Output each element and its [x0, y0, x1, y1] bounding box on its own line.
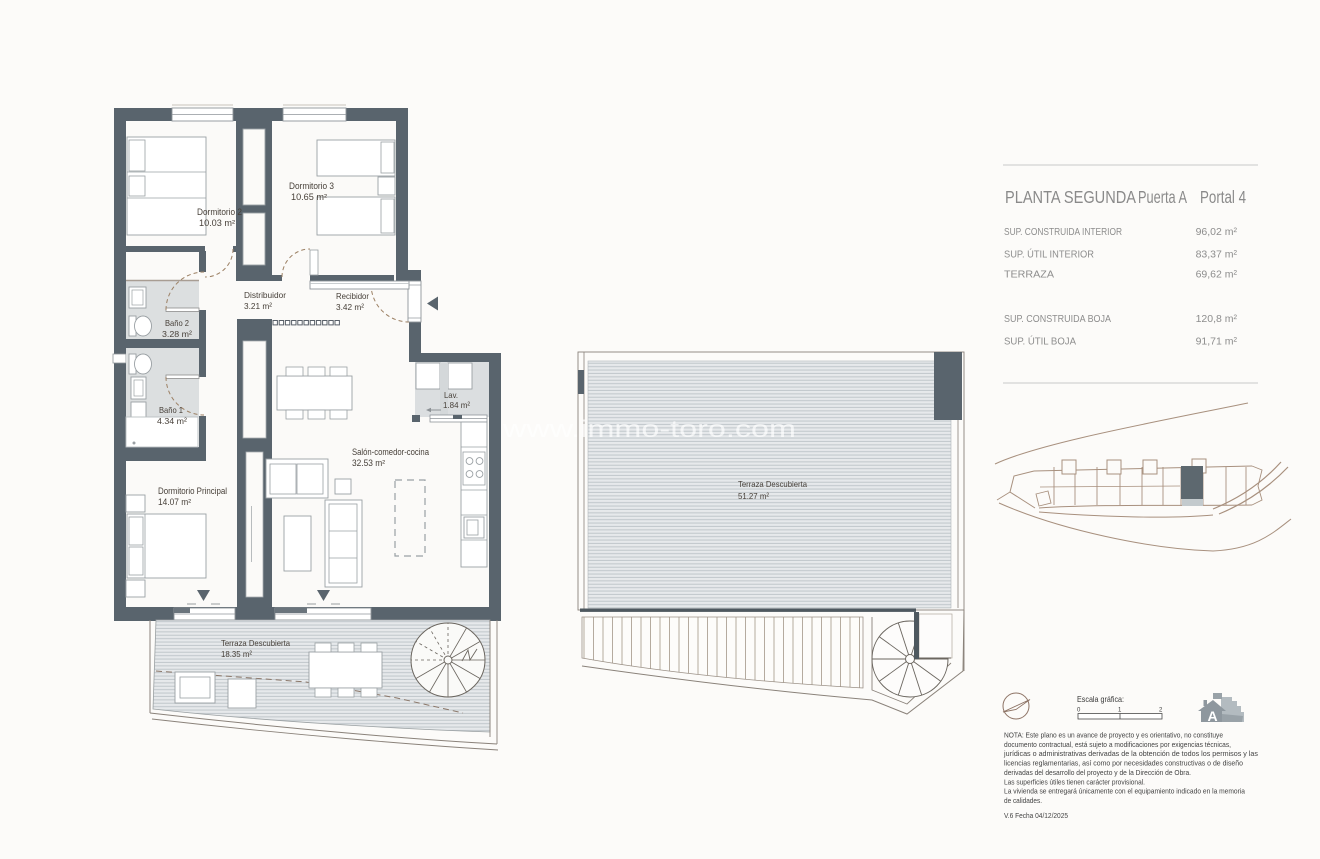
svg-text:10.65 m²: 10.65 m² — [291, 192, 327, 202]
svg-text:Terraza Descubierta: Terraza Descubierta — [738, 479, 807, 489]
svg-text:Lav.: Lav. — [444, 390, 458, 400]
svg-text:4.34 m²: 4.34 m² — [157, 416, 187, 426]
svg-text:derivadas del desarrollo del p: derivadas del desarrollo del proyecto y … — [1004, 768, 1191, 777]
svg-text:120,8 m²: 120,8 m² — [1196, 313, 1238, 325]
svg-text:Baño 2: Baño 2 — [165, 318, 189, 328]
svg-text:Portal 4: Portal 4 — [1200, 187, 1246, 207]
svg-text:14.07 m²: 14.07 m² — [158, 497, 191, 507]
svg-text:Dormitorio 2: Dormitorio 2 — [197, 207, 242, 217]
svg-text:Salón-comedor-cocina: Salón-comedor-cocina — [352, 447, 429, 457]
svg-text:83,37 m²: 83,37 m² — [1196, 249, 1238, 261]
svg-text:91,71 m²: 91,71 m² — [1196, 336, 1238, 348]
svg-text:18.35 m²: 18.35 m² — [221, 649, 252, 659]
svg-text:51.27 m²: 51.27 m² — [738, 491, 769, 501]
svg-text:PLANTA SEGUNDA: PLANTA SEGUNDA — [1005, 187, 1136, 207]
svg-text:1.84 m²: 1.84 m² — [443, 400, 470, 410]
svg-text:www.immo-toro.com: www.immo-toro.com — [502, 416, 796, 443]
svg-text:Puerta A: Puerta A — [1138, 187, 1187, 207]
svg-text:69,62 m²: 69,62 m² — [1196, 269, 1238, 281]
svg-text:documento contractual, está su: documento contractual, está sujeto a mod… — [1004, 740, 1231, 749]
svg-text:jurídicas o administrativas de: jurídicas o administrativas derivadas de… — [1003, 749, 1258, 758]
svg-text:TERRAZA: TERRAZA — [1004, 269, 1054, 281]
svg-text:de calidades.: de calidades. — [1004, 796, 1042, 805]
svg-text:SUP. ÚTIL BOJA: SUP. ÚTIL BOJA — [1004, 335, 1076, 348]
svg-text:3.21 m²: 3.21 m² — [244, 301, 272, 311]
svg-text:V.6 Fecha 04/12/2025: V.6 Fecha 04/12/2025 — [1004, 811, 1068, 820]
svg-text:NOTA: Este plano es un avance: NOTA: Este plano es un avance de proyect… — [1004, 731, 1223, 740]
svg-text:SUP. CONSTRUIDA BOJA: SUP. CONSTRUIDA BOJA — [1004, 313, 1111, 325]
svg-text:Dormitorio Principal: Dormitorio Principal — [158, 486, 227, 496]
svg-text:Las superficies útiles tienen: Las superficies útiles tienen carácter p… — [1004, 777, 1145, 786]
svg-text:3.28 m²: 3.28 m² — [162, 329, 192, 339]
svg-text:32.53 m²: 32.53 m² — [352, 458, 385, 468]
svg-text:licencias reglamentarias, así: licencias reglamentarias, así como por n… — [1004, 759, 1243, 768]
svg-text:96,02 m²: 96,02 m² — [1196, 226, 1238, 238]
svg-text:SUP. ÚTIL INTERIOR: SUP. ÚTIL INTERIOR — [1004, 248, 1094, 261]
svg-text:Escala gráfica:: Escala gráfica: — [1077, 695, 1124, 704]
svg-text:La vivienda se entregará única: La vivienda se entregará únicamente con … — [1004, 787, 1246, 796]
svg-text:3.42 m²: 3.42 m² — [336, 302, 364, 312]
svg-text:Distribuidor: Distribuidor — [244, 290, 286, 300]
svg-text:Terraza Descubierta: Terraza Descubierta — [221, 638, 290, 648]
svg-text:SUP. CONSTRUIDA INTERIOR: SUP. CONSTRUIDA INTERIOR — [1004, 226, 1122, 238]
svg-text:10.03 m²: 10.03 m² — [199, 218, 235, 228]
svg-text:Baño 1: Baño 1 — [159, 405, 183, 415]
svg-text:Recibidor: Recibidor — [336, 291, 369, 301]
svg-text:A: A — [1207, 708, 1217, 724]
svg-text:Dormitorio 3: Dormitorio 3 — [289, 181, 334, 191]
